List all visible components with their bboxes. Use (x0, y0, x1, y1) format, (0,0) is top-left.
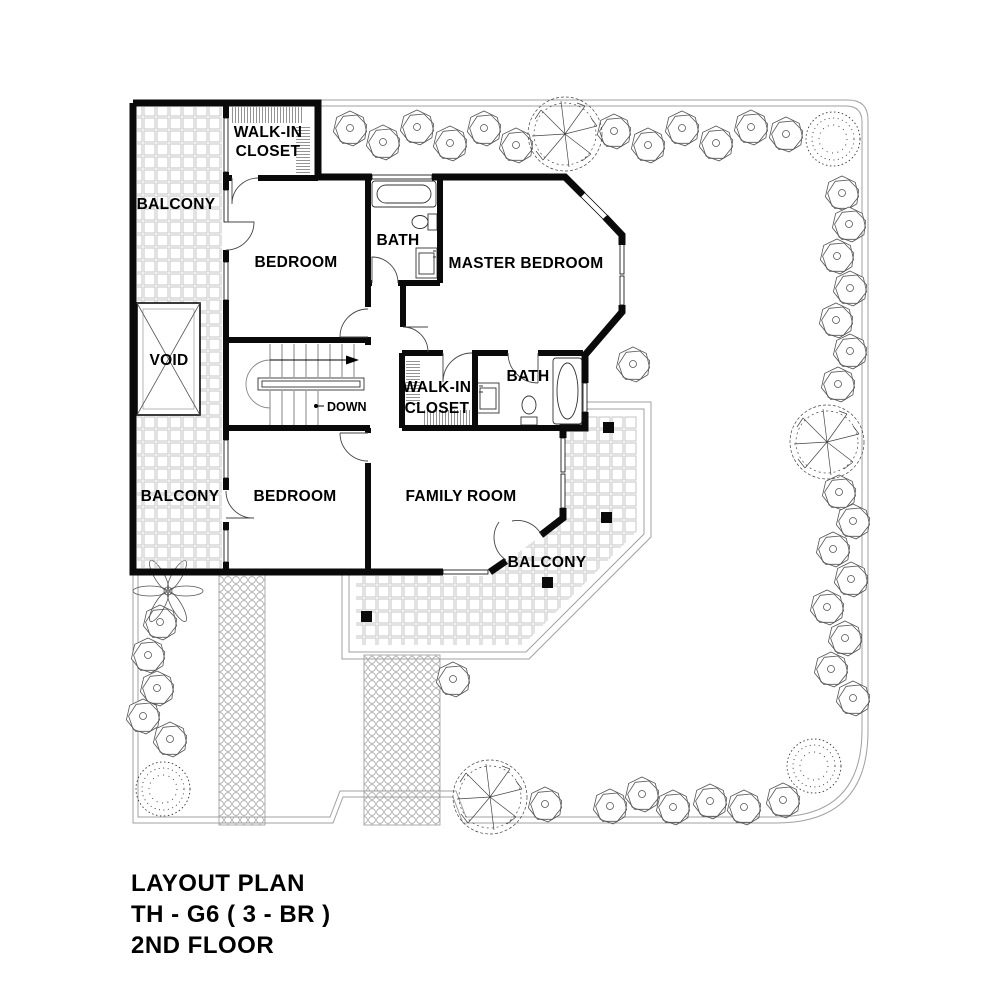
room-label-bedroom-upper: BEDROOM (254, 254, 337, 271)
window (561, 474, 565, 508)
toilet-icon (412, 214, 437, 230)
room-label-bath-upper: BATH (376, 232, 419, 249)
column (601, 512, 612, 523)
column (542, 577, 553, 588)
window (224, 190, 228, 222)
room-label-balcony-terrace: BALCONY (508, 554, 587, 571)
window (620, 243, 624, 274)
stair-direction-label: DOWN (327, 400, 367, 414)
floor-plan-page: BALCONY WALK-IN CLOSET BEDROOM BATH MAST… (0, 0, 1000, 1000)
room-label-bath-lower: BATH (506, 368, 549, 385)
bathtub-icon (553, 358, 582, 424)
window (583, 383, 587, 412)
window (443, 570, 488, 574)
room-label-void: VOID (149, 352, 188, 369)
walkway-path (219, 574, 265, 825)
window (561, 438, 565, 472)
window (224, 530, 228, 562)
sink-icon (477, 383, 499, 413)
window (372, 175, 432, 179)
room-label-walk-in-closet-lower-1: WALK-IN (403, 379, 471, 396)
room-label-walk-in-closet-lower-2: CLOSET (405, 400, 470, 417)
column (361, 611, 372, 622)
bathtub-icon (372, 181, 436, 207)
column (603, 422, 614, 433)
toilet-icon (521, 396, 537, 425)
window (224, 262, 228, 300)
room-label-walk-in-closet-upper-1: WALK-IN (234, 124, 302, 141)
walkway-path (364, 655, 440, 825)
room-label-walk-in-closet-upper-2: CLOSET (236, 143, 301, 160)
title-line-1: LAYOUT PLAN (131, 870, 305, 897)
window (224, 118, 228, 172)
window (224, 440, 228, 478)
sink-icon (416, 248, 437, 278)
room-label-bedroom-lower: BEDROOM (253, 488, 336, 505)
title-line-2: TH - G6 ( 3 - BR ) (131, 901, 331, 928)
title-line-3: 2ND FLOOR (131, 932, 274, 959)
window (620, 276, 624, 305)
room-label-balcony-upper: BALCONY (137, 196, 216, 213)
room-label-master-bedroom: MASTER BEDROOM (449, 255, 604, 272)
floor-plan-canvas: BALCONY WALK-IN CLOSET BEDROOM BATH MAST… (0, 0, 1000, 1000)
hanging-rail-icon (232, 107, 304, 123)
room-label-family-room: FAMILY ROOM (406, 488, 517, 505)
room-label-balcony-lower: BALCONY (141, 488, 220, 505)
